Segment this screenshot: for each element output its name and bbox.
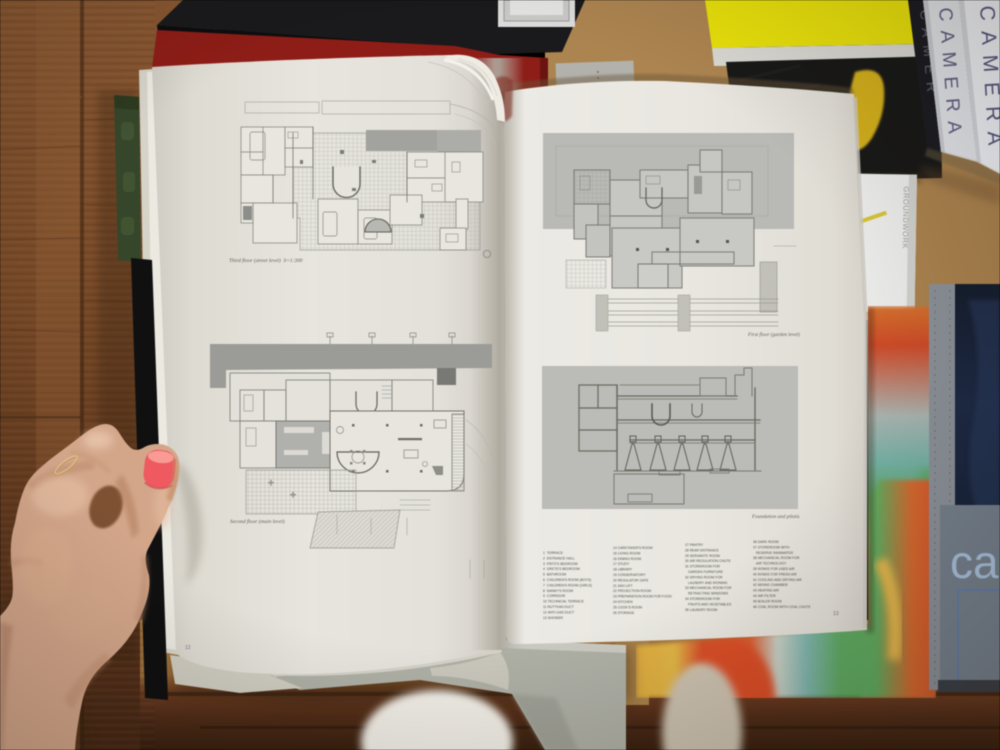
svg-text:16 DINING ROOM: 16 DINING ROOM: [613, 557, 641, 561]
svg-text:25 COOK'S ROOM: 25 COOK'S ROOM: [613, 605, 642, 609]
svg-text:19 CONSERVATORY: 19 CONSERVATORY: [613, 573, 646, 577]
svg-text:36 DARK ROOM: 36 DARK ROOM: [753, 540, 779, 544]
svg-text:Third floor (street level) S=: Third floor (street level) S=1:300: [229, 257, 303, 264]
svg-text:1 TERRACE: 1 TERRACE: [543, 551, 564, 555]
svg-text:5 BATHROOM: 5 BATHROOM: [543, 573, 566, 577]
svg-text:38 MECHANICAL ROOM FOR: 38 MECHANICAL ROOM FOR: [753, 556, 800, 560]
svg-text:Second floor (main level): Second floor (main level): [230, 518, 285, 525]
svg-text:17 STUDY: 17 STUDY: [613, 562, 630, 566]
svg-text:13: 13: [833, 611, 839, 617]
svg-text:35 LAUNDRY ROOM: 35 LAUNDRY ROOM: [685, 608, 717, 612]
svg-text:21 ASH LIFT: 21 ASH LIFT: [613, 584, 633, 588]
svg-text:7 CHILDREN'S ROOM (GIRLS): 7 CHILDREN'S ROOM (GIRLS): [543, 583, 592, 587]
svg-text:14 CARETAKER'S ROOM: 14 CARETAKER'S ROOM: [613, 546, 653, 550]
svg-text:6 CHILDREN'S ROOM (BOYS): 6 CHILDREN'S ROOM (BOYS): [543, 578, 591, 582]
svg-text:30 AIR REGULATION CHUTE: 30 AIR REGULATION CHUTE: [685, 559, 731, 563]
svg-text:33 MECHANICAL ROOM FOR: 33 MECHANICAL ROOM FOR: [685, 586, 732, 590]
svg-text:2 ENTRANCE HALL: 2 ENTRANCE HALL: [543, 556, 575, 560]
svg-text:44 AIR FILTER: 44 AIR FILTER: [753, 594, 776, 598]
svg-text:8 NANNY'S ROOM: 8 NANNY'S ROOM: [543, 589, 573, 593]
svg-text:ca: ca: [950, 536, 999, 588]
svg-text:20 REGULATOR GATE: 20 REGULATOR GATE: [613, 578, 649, 582]
svg-text:28 REAR ENTRANCE: 28 REAR ENTRANCE: [685, 548, 719, 552]
svg-text:Foundation and pilotis: Foundation and pilotis: [751, 514, 800, 520]
svg-text:23 PREPARATION ROOM FOR FOOD: 23 PREPARATION ROOM FOR FOOD: [613, 595, 672, 599]
svg-text:37 STOREROOM WITH: 37 STOREROOM WITH: [753, 545, 790, 549]
svg-text:26 STORAGE: 26 STORAGE: [613, 611, 635, 615]
svg-text:4 GRETE'S BEDROOM: 4 GRETE'S BEDROOM: [543, 567, 580, 571]
svg-text:10 TECHNICAL TERRACE: 10 TECHNICAL TERRACE: [543, 600, 585, 604]
svg-text:9 CORRIDOR: 9 CORRIDOR: [543, 594, 566, 598]
svg-text:First floor (garden level): First floor (garden level): [747, 331, 800, 338]
svg-text:39 INTAKE FOR USED AIR: 39 INTAKE FOR USED AIR: [753, 567, 795, 571]
svg-text:46 COAL ROOM WITH COAL CHUTE: 46 COAL ROOM WITH COAL CHUTE: [753, 605, 811, 609]
svg-text:GROUNDWORK: GROUNDWORK: [901, 186, 911, 249]
svg-text:24 KITCHEN: 24 KITCHEN: [613, 600, 633, 604]
svg-text:GARDEN FURNITURE: GARDEN FURNITURE: [688, 570, 724, 574]
svg-text:43 HEATING AIR: 43 HEATING AIR: [753, 589, 779, 593]
svg-text:18 LIBRARY: 18 LIBRARY: [613, 568, 633, 572]
svg-text:32 DRYING ROOM FOR: 32 DRYING ROOM FOR: [685, 575, 723, 579]
svg-text:11 RUTTKAN DUCT: 11 RUTTKAN DUCT: [543, 605, 574, 609]
svg-text:12: 12: [185, 645, 191, 651]
svg-text:27 PANTRY: 27 PANTRY: [685, 543, 704, 547]
svg-text:3 FRITZ'S BEDROOM: 3 FRITZ'S BEDROOM: [543, 562, 578, 566]
svg-text:31 STOREROOM FOR: 31 STOREROOM FOR: [685, 565, 721, 569]
svg-text:45 BOILER ROOM: 45 BOILER ROOM: [753, 599, 782, 603]
svg-text:42 MIXING CHAMBER: 42 MIXING CHAMBER: [753, 583, 788, 587]
svg-text:FRUITS AND VEGETABLES: FRUITS AND VEGETABLES: [688, 602, 732, 606]
svg-text:34 STOREROOM FOR: 34 STOREROOM FOR: [685, 597, 721, 601]
svg-text:13 SHOWER: 13 SHOWER: [543, 616, 564, 620]
svg-text:LAUNDRY AND IRONING: LAUNDRY AND IRONING: [688, 581, 728, 585]
svg-text:12 ANTI-GAS DUCT: 12 ANTI-GAS DUCT: [543, 610, 574, 614]
svg-text:RETRACTING WINDOWS: RETRACTING WINDOWS: [688, 592, 729, 596]
svg-text:AIR TECHNOLOGY: AIR TECHNOLOGY: [756, 562, 787, 566]
svg-text:40 INTAKE FOR FRESH AIR: 40 INTAKE FOR FRESH AIR: [753, 572, 797, 576]
svg-text:22 PROJECTION ROOM: 22 PROJECTION ROOM: [613, 589, 651, 593]
svg-text:41 COOLING AND DRYING AIR: 41 COOLING AND DRYING AIR: [753, 578, 802, 582]
svg-text:RESERVE RAINWATER: RESERVE RAINWATER: [756, 551, 794, 555]
svg-text:15 LIVING ROOM: 15 LIVING ROOM: [613, 551, 640, 555]
svg-text:29 SERVANTS' ROOM: 29 SERVANTS' ROOM: [685, 554, 720, 558]
